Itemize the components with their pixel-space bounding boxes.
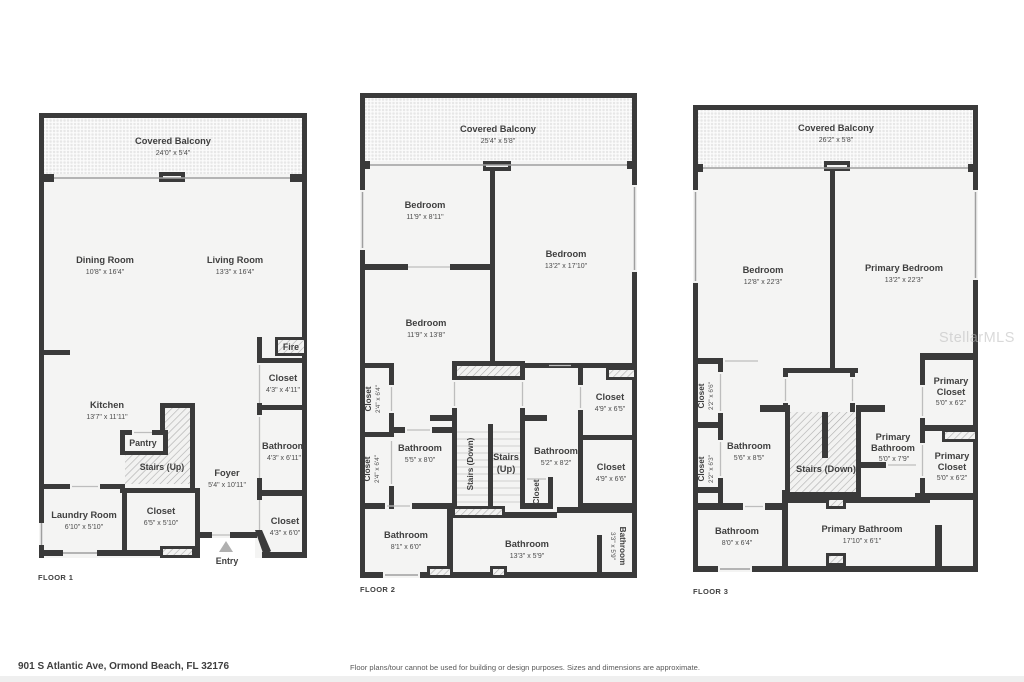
bottom-strip bbox=[0, 676, 1024, 682]
room-dims-closet-f2-br: 4'9" x 6'6" bbox=[596, 476, 627, 483]
room-label-primary-closet-top-line2: Closet bbox=[937, 387, 965, 397]
room-label-covered-balcony-f3: Covered Balcony bbox=[798, 123, 875, 133]
room-dims-closet-f1b: 4'3" x 4'11" bbox=[266, 387, 300, 394]
floor-2-plan: Covered Balcony 25'4" x 5'8" Bedroom 11'… bbox=[360, 93, 637, 594]
room-label-primary-bedroom: Primary Bedroom bbox=[865, 263, 943, 273]
floor2-landing-hatch bbox=[457, 366, 520, 376]
floor1-stairs-hatch bbox=[165, 408, 190, 455]
room-label-primary-closet-bottom-line2: Closet bbox=[938, 462, 966, 472]
room-label-bedroom-f2a: Bedroom bbox=[405, 200, 446, 210]
floor-1-label: FLOOR 1 bbox=[38, 573, 73, 582]
stellar-mls-watermark: StellarMLS bbox=[939, 330, 1015, 346]
room-dims-primary-bedroom: 13'2" x 22'3" bbox=[885, 277, 924, 284]
svg-text:Stairs (Down): Stairs (Down) bbox=[466, 437, 475, 490]
svg-text:2'4" x 6'4": 2'4" x 6'4" bbox=[375, 385, 382, 413]
room-dims-bedroom-f2c: 11'9" x 13'8" bbox=[407, 332, 445, 339]
room-label-closet-f1a: Closet bbox=[147, 506, 175, 516]
room-dims-closet-f1c: 4'3" x 6'0" bbox=[270, 530, 301, 537]
svg-text:Closet: Closet bbox=[364, 386, 373, 411]
room-label-closet-f2-tr: Closet bbox=[596, 392, 624, 402]
room-label-closet-f2-br: Closet bbox=[597, 462, 625, 472]
room-dims-bathroom-f2a: 5'5" x 8'0" bbox=[405, 457, 436, 464]
room-label-entry: Entry bbox=[216, 556, 239, 566]
floor-3-plan: Covered Balcony 26'2" x 5'8" Bedroom 12'… bbox=[693, 105, 978, 596]
room-dims-bedroom-f2a: 11'9" x 8'11" bbox=[406, 214, 444, 221]
room-label-covered-balcony-f1: Covered Balcony bbox=[135, 136, 212, 146]
room-dims-bathroom-f2c: 8'1" x 6'0" bbox=[391, 544, 422, 551]
svg-text:Closet: Closet bbox=[697, 383, 706, 408]
room-dims-foyer: 5'4" x 10'11" bbox=[208, 482, 246, 489]
floorplan-drawing: Covered Balcony 24'0" x 5'4" Dining Room… bbox=[0, 0, 1024, 682]
room-label-bathroom-f2c: Bathroom bbox=[384, 530, 428, 540]
room-dims-covered-balcony-f3: 26'2" x 5'8" bbox=[819, 137, 854, 144]
room-label-covered-balcony-f2: Covered Balcony bbox=[460, 124, 537, 134]
room-dims-primary-bathroom-bottom: 17'10" x 6'1" bbox=[843, 538, 882, 545]
room-label-stairs-up-f1: Stairs (Up) bbox=[140, 462, 185, 472]
room-label-kitchen: Kitchen bbox=[90, 400, 124, 410]
floorplan-page: Covered Balcony 24'0" x 5'4" Dining Room… bbox=[0, 0, 1024, 682]
room-label-bedroom-f2c: Bedroom bbox=[406, 318, 447, 328]
floor1-balcony-deck bbox=[44, 118, 302, 174]
room-label-stairs-up-f2: Stairs bbox=[493, 452, 519, 462]
room-label-pantry: Pantry bbox=[129, 438, 156, 448]
floor1-closet-door-sill bbox=[160, 546, 195, 558]
room-label-primary-bathroom-mid: Primary bbox=[876, 432, 911, 442]
floor-2-label: FLOOR 2 bbox=[360, 585, 395, 594]
floor-3-label: FLOOR 3 bbox=[693, 587, 728, 596]
svg-text:2'4" x 6'4": 2'4" x 6'4" bbox=[374, 455, 381, 483]
room-label-primary-closet-bottom: Primary bbox=[935, 451, 970, 461]
svg-text:Bathroom: Bathroom bbox=[618, 527, 627, 566]
room-dims-laundry-room: 6'10" x 5'10" bbox=[65, 524, 104, 531]
room-label-foyer: Foyer bbox=[214, 468, 240, 478]
room-label-bathroom-f2d: Bathroom bbox=[505, 539, 549, 549]
room-label-laundry-room: Laundry Room bbox=[51, 510, 117, 520]
room-dims-bedroom-f3: 12'8" x 22'3" bbox=[744, 279, 783, 286]
room-label-stairs-up-f2-line2: (Up) bbox=[497, 464, 516, 474]
svg-text:Closet: Closet bbox=[697, 456, 706, 481]
room-dims-living-room: 13'3" x 16'4" bbox=[216, 269, 255, 276]
room-label-bathroom-f2b: Bathroom bbox=[534, 446, 578, 456]
room-dims-primary-bathroom-mid: 5'0" x 7'9" bbox=[879, 456, 910, 463]
room-label-primary-closet-top: Primary bbox=[934, 376, 969, 386]
room-dims-bedroom-f2b: 13'2" x 17'10" bbox=[545, 263, 588, 270]
svg-text:3'3" x 5'9": 3'3" x 5'9" bbox=[609, 532, 616, 560]
room-dims-covered-balcony-f1: 24'0" x 5'4" bbox=[156, 150, 191, 157]
svg-text:2'2" x 6'6": 2'2" x 6'6" bbox=[708, 382, 715, 410]
room-dims-kitchen: 13'7" x 11'11" bbox=[86, 414, 128, 421]
disclaimer-text: Floor plans/tour cannot be used for buil… bbox=[350, 663, 700, 672]
room-label-primary-bathroom-mid-line2: Bathroom bbox=[871, 443, 915, 453]
room-dims-dining-room: 10'8" x 16'4" bbox=[86, 269, 125, 276]
room-label-bathroom-f1: Bathroom bbox=[262, 441, 306, 451]
room-label-living-room: Living Room bbox=[207, 255, 263, 265]
room-dims-bathroom-f1: 4'3" x 6'11" bbox=[267, 455, 301, 462]
room-label-stairs-down-f3: Stairs (Down) bbox=[796, 464, 856, 474]
room-label-bedroom-f2b: Bedroom bbox=[546, 249, 587, 259]
room-dims-primary-closet-bottom: 5'0" x 6'2" bbox=[937, 475, 968, 482]
room-label-bathroom-f3b: Bathroom bbox=[715, 526, 759, 536]
room-label-closet-f1b: Closet bbox=[269, 373, 297, 383]
svg-text:Closet: Closet bbox=[532, 479, 541, 504]
room-label-primary-bathroom-bottom: Primary Bathroom bbox=[821, 524, 902, 534]
room-label-stairs-down-f2: Stairs (Down) bbox=[466, 437, 475, 490]
room-label-fire: Fire bbox=[283, 342, 299, 352]
room-label-closet-f1c: Closet bbox=[271, 516, 299, 526]
room-dims-bathroom-f3a: 5'6" x 8'5" bbox=[734, 455, 765, 462]
room-label-bathroom-f3a: Bathroom bbox=[727, 441, 771, 451]
room-label-closet-f2-small: Closet bbox=[532, 479, 541, 504]
svg-text:2'2" x 6'3": 2'2" x 6'3" bbox=[708, 455, 715, 483]
room-dims-bathroom-f2b: 5'2" x 8'2" bbox=[541, 460, 572, 467]
floor-1-plan: Covered Balcony 24'0" x 5'4" Dining Room… bbox=[38, 113, 307, 582]
room-label-dining-room: Dining Room bbox=[76, 255, 134, 265]
room-dims-bathroom-f2d: 13'3" x 5'9" bbox=[510, 553, 545, 560]
room-dims-closet-f1a: 6'5" x 5'10" bbox=[144, 520, 179, 527]
room-label-bedroom-f3: Bedroom bbox=[743, 265, 784, 275]
room-dims-covered-balcony-f2: 25'4" x 5'8" bbox=[481, 138, 516, 145]
svg-text:Closet: Closet bbox=[363, 456, 372, 481]
room-dims-bathroom-f3b: 8'0" x 6'4" bbox=[722, 540, 753, 547]
property-address: 901 S Atlantic Ave, Ormond Beach, FL 321… bbox=[18, 661, 229, 672]
room-dims-primary-closet-top: 5'0" x 6'2" bbox=[936, 400, 967, 407]
room-label-bathroom-f2a: Bathroom bbox=[398, 443, 442, 453]
room-dims-closet-f2-tr: 4'9" x 6'5" bbox=[595, 406, 626, 413]
